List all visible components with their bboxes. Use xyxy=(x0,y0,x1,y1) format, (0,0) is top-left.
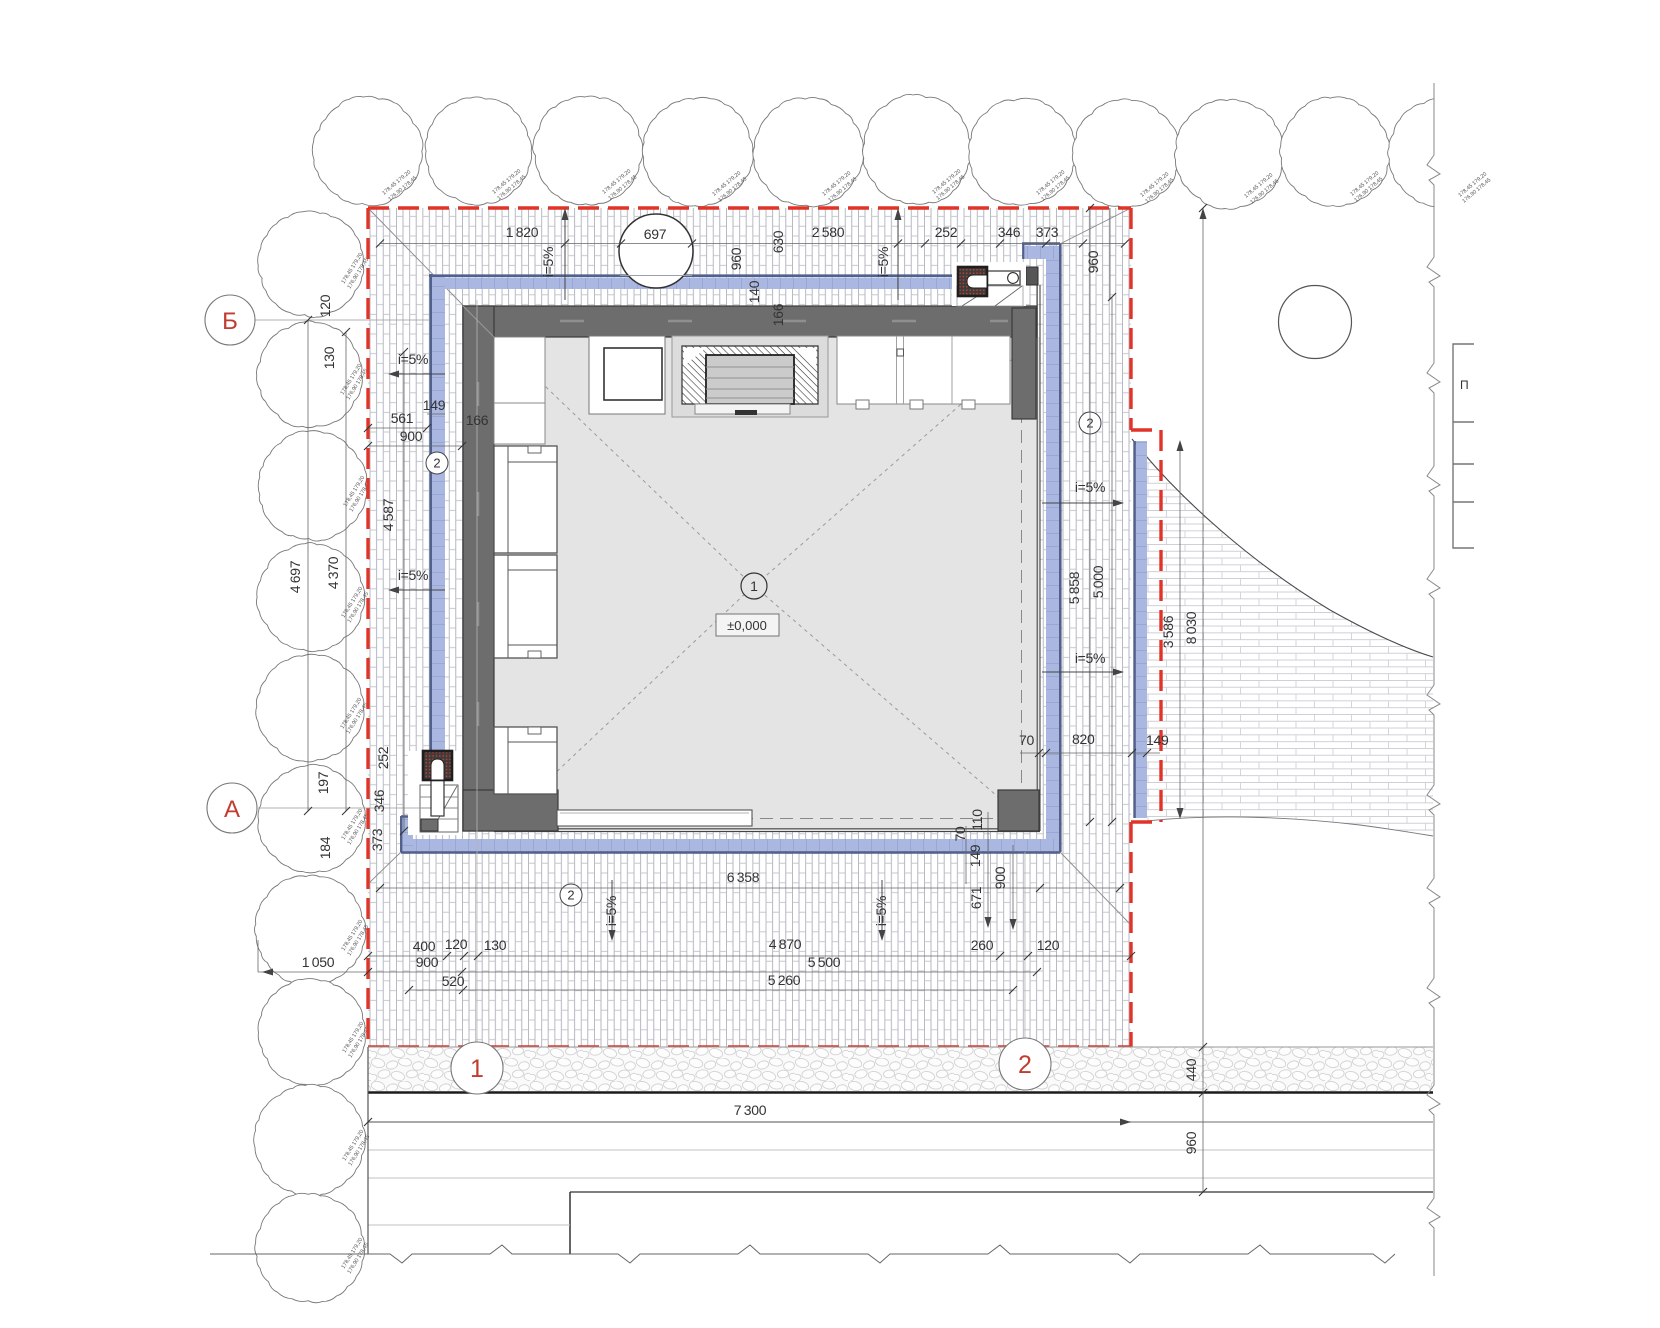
svg-text:1 050: 1 050 xyxy=(302,954,335,970)
svg-text:440: 440 xyxy=(1183,1058,1199,1081)
svg-text:149: 149 xyxy=(423,397,446,413)
svg-text:130: 130 xyxy=(321,346,337,369)
svg-text:4 870: 4 870 xyxy=(769,936,802,952)
svg-text:184: 184 xyxy=(317,836,333,859)
svg-text:900: 900 xyxy=(992,866,1008,889)
svg-text:1: 1 xyxy=(470,1055,484,1083)
svg-text:520: 520 xyxy=(442,973,465,989)
svg-text:5 000: 5 000 xyxy=(1090,565,1106,598)
svg-text:6 358: 6 358 xyxy=(727,869,760,885)
svg-text:i=5%: i=5% xyxy=(873,896,889,926)
svg-text:120: 120 xyxy=(445,936,468,952)
svg-text:4 370: 4 370 xyxy=(325,556,341,589)
svg-text:400: 400 xyxy=(413,938,436,954)
svg-text:149: 149 xyxy=(1146,732,1169,748)
svg-text:960: 960 xyxy=(1085,250,1101,273)
svg-text:4 697: 4 697 xyxy=(287,560,303,593)
svg-text:140: 140 xyxy=(746,280,762,303)
svg-text:900: 900 xyxy=(400,428,423,444)
svg-text:7 300: 7 300 xyxy=(734,1102,767,1118)
svg-text:Б: Б xyxy=(222,308,238,335)
svg-text:5 260: 5 260 xyxy=(768,972,801,988)
svg-text:i=5%: i=5% xyxy=(1075,650,1105,666)
svg-text:120: 120 xyxy=(1037,937,1060,953)
svg-text:5 500: 5 500 xyxy=(808,954,841,970)
svg-text:697: 697 xyxy=(644,226,667,242)
svg-text:i=5%: i=5% xyxy=(540,247,556,277)
svg-text:252: 252 xyxy=(375,746,391,769)
svg-text:70: 70 xyxy=(1019,732,1034,748)
svg-text:260: 260 xyxy=(971,937,994,953)
svg-text:630: 630 xyxy=(770,230,786,253)
svg-text:2 580: 2 580 xyxy=(812,224,845,240)
svg-text:i=5%: i=5% xyxy=(603,896,619,926)
svg-text:±0,000: ±0,000 xyxy=(727,618,767,633)
svg-text:960: 960 xyxy=(1183,1131,1199,1154)
svg-text:197: 197 xyxy=(315,771,331,794)
svg-text:i=5%: i=5% xyxy=(398,351,428,367)
svg-text:561: 561 xyxy=(391,410,414,426)
svg-text:960: 960 xyxy=(728,247,744,270)
svg-text:i=5%: i=5% xyxy=(875,247,891,277)
svg-text:820: 820 xyxy=(1072,731,1095,747)
svg-text:900: 900 xyxy=(416,954,439,970)
svg-text:2: 2 xyxy=(433,456,440,471)
svg-text:4 587: 4 587 xyxy=(380,498,396,531)
svg-text:2: 2 xyxy=(1018,1051,1032,1079)
svg-text:166: 166 xyxy=(466,412,489,428)
svg-text:671: 671 xyxy=(968,886,984,909)
svg-text:1 820: 1 820 xyxy=(506,224,539,240)
svg-text:1: 1 xyxy=(750,578,758,594)
svg-text:120: 120 xyxy=(317,294,333,317)
svg-text:i=5%: i=5% xyxy=(398,567,428,583)
svg-text:346: 346 xyxy=(998,224,1021,240)
svg-text:П: П xyxy=(1460,378,1469,392)
svg-text:252: 252 xyxy=(935,224,958,240)
svg-text:373: 373 xyxy=(369,828,385,851)
svg-text:5 858: 5 858 xyxy=(1066,571,1082,604)
svg-text:346: 346 xyxy=(371,789,387,812)
svg-text:i=5%: i=5% xyxy=(1075,479,1105,495)
svg-text:130: 130 xyxy=(484,937,507,953)
svg-text:373: 373 xyxy=(1036,224,1059,240)
svg-text:А: А xyxy=(224,796,240,823)
svg-text:3 586: 3 586 xyxy=(1160,615,1176,648)
svg-text:166: 166 xyxy=(770,303,786,326)
svg-text:110: 110 xyxy=(969,809,985,831)
svg-text:8 030: 8 030 xyxy=(1183,611,1199,644)
svg-text:2: 2 xyxy=(567,888,574,903)
svg-text:70: 70 xyxy=(952,826,968,841)
svg-text:149: 149 xyxy=(967,844,983,867)
